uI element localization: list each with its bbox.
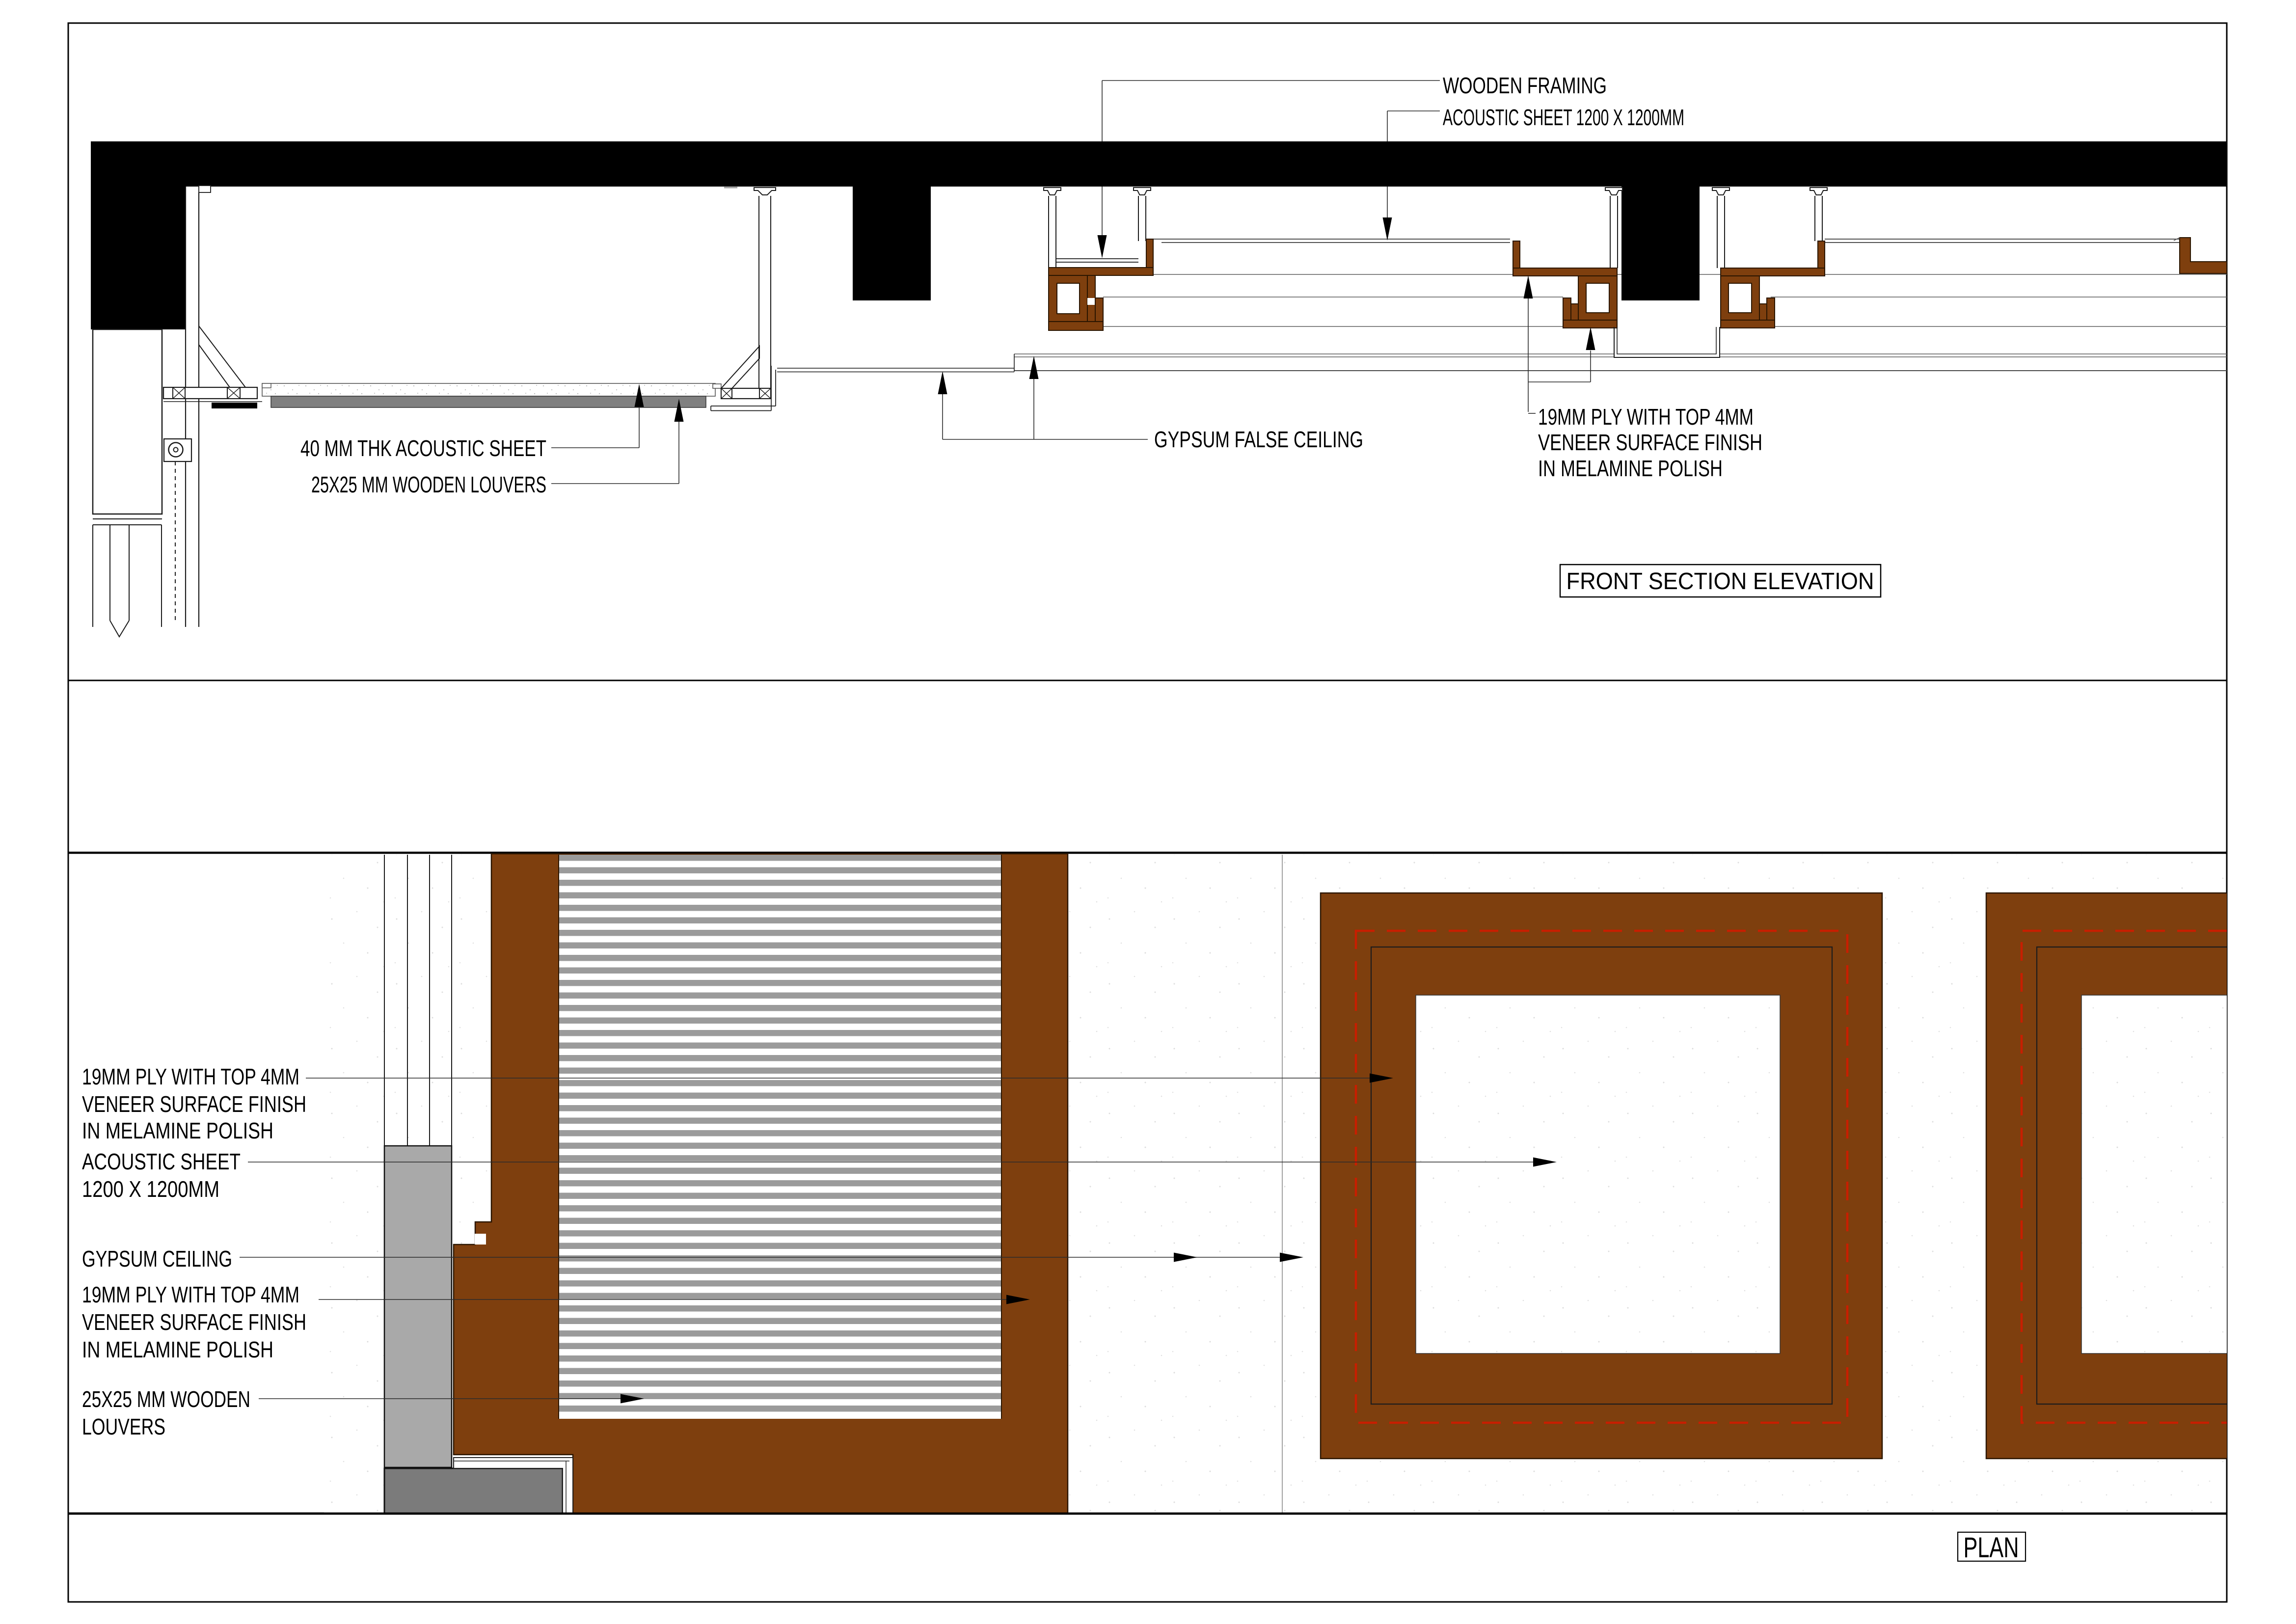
svg-text:FRONT SECTION ELEVATION: FRONT SECTION ELEVATION — [1567, 568, 1874, 595]
svg-text:19MM PLY WITH TOP 4MM: 19MM PLY WITH TOP 4MM — [82, 1064, 299, 1089]
svg-text:19MM PLY WITH TOP 4MM: 19MM PLY WITH TOP 4MM — [1538, 404, 1754, 430]
svg-text:19MM PLY WITH TOP 4MM: 19MM PLY WITH TOP 4MM — [82, 1282, 299, 1307]
svg-text:IN MELAMINE POLISH: IN MELAMINE POLISH — [1538, 456, 1723, 481]
svg-text:VENEER SURFACE FINISH: VENEER SURFACE FINISH — [1538, 430, 1762, 455]
svg-text:1200 X 1200MM: 1200 X 1200MM — [82, 1176, 219, 1202]
svg-text:IN MELAMINE POLISH: IN MELAMINE POLISH — [82, 1337, 273, 1362]
svg-text:GYPSUM FALSE CEILING: GYPSUM FALSE CEILING — [1154, 427, 1363, 452]
svg-text:25X25 MM WOODEN: 25X25 MM WOODEN — [82, 1386, 250, 1412]
svg-text:PLAN: PLAN — [1964, 1532, 2019, 1564]
svg-text:ACOUSTIC SHEET 1200 X 1200MM: ACOUSTIC SHEET 1200 X 1200MM — [1443, 105, 1684, 130]
svg-text:25X25 MM WOODEN LOUVERS: 25X25 MM WOODEN LOUVERS — [311, 472, 546, 497]
svg-text:GYPSUM CEILING: GYPSUM CEILING — [82, 1246, 232, 1272]
svg-text:LOUVERS: LOUVERS — [82, 1414, 165, 1439]
svg-text:IN MELAMINE POLISH: IN MELAMINE POLISH — [82, 1118, 273, 1143]
svg-text:VENEER SURFACE FINISH: VENEER SURFACE FINISH — [82, 1091, 306, 1117]
svg-text:VENEER SURFACE FINISH: VENEER SURFACE FINISH — [82, 1309, 306, 1335]
svg-text:WOODEN FRAMING: WOODEN FRAMING — [1443, 73, 1607, 98]
svg-text:40 MM THK ACOUSTIC SHEET: 40 MM THK ACOUSTIC SHEET — [300, 435, 546, 461]
svg-text:ACOUSTIC SHEET: ACOUSTIC SHEET — [82, 1149, 241, 1174]
